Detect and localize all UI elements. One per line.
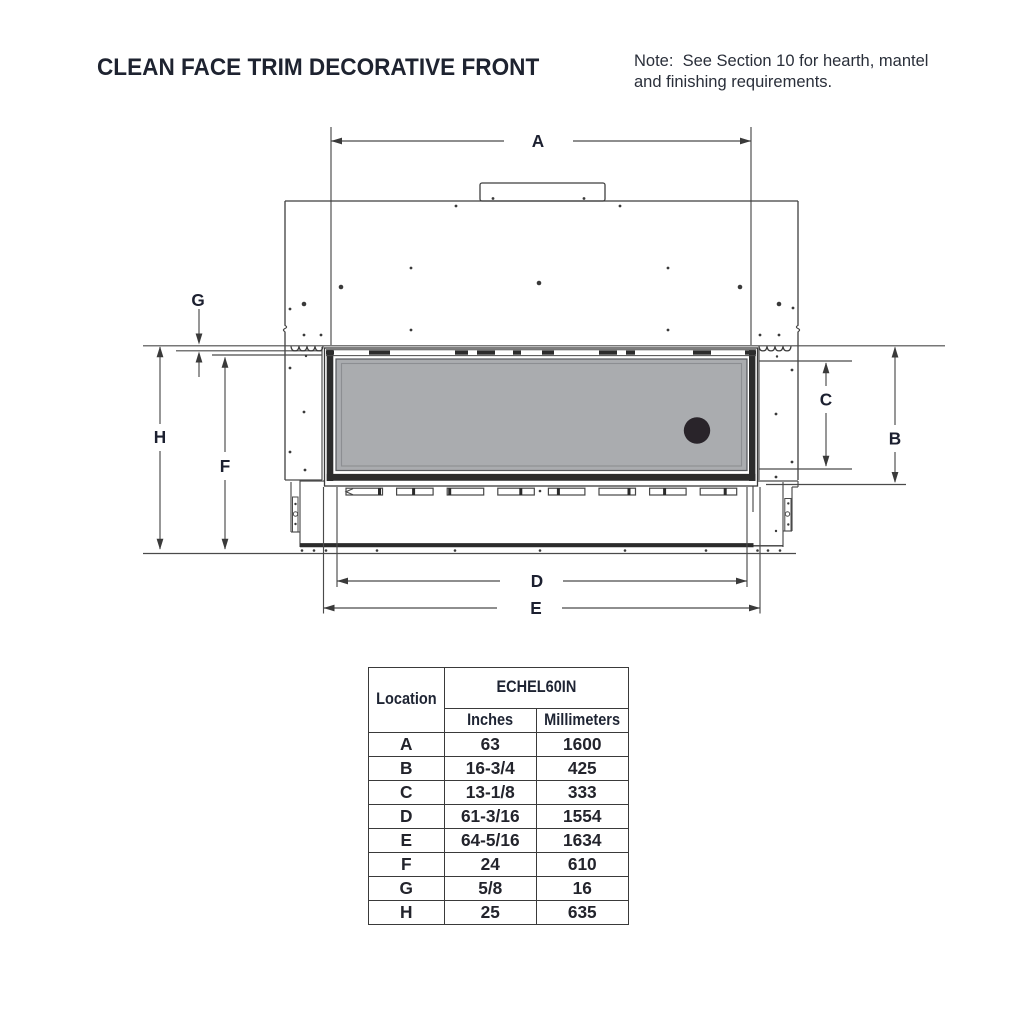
- svg-text:C: C: [820, 390, 832, 410]
- svg-text:F: F: [220, 456, 231, 476]
- svg-text:E: E: [530, 598, 541, 618]
- svg-text:H: H: [154, 427, 166, 447]
- svg-text:G: G: [191, 290, 204, 310]
- svg-text:A: A: [532, 131, 544, 151]
- svg-text:D: D: [531, 571, 543, 591]
- svg-text:B: B: [889, 429, 901, 449]
